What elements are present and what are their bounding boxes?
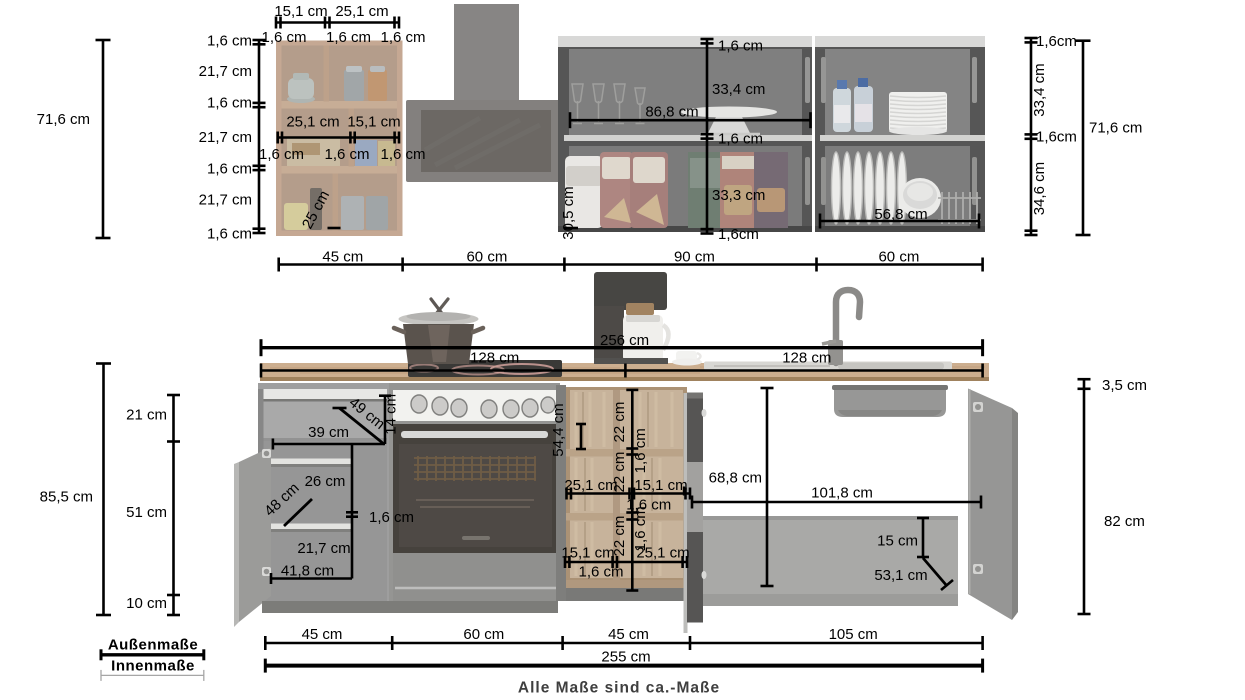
svg-text:45 cm: 45 cm (608, 626, 649, 643)
svg-text:54,4 cm: 54,4 cm (550, 403, 567, 456)
svg-text:128 cm: 128 cm (470, 349, 519, 366)
svg-text:1,6cm: 1,6cm (718, 226, 759, 243)
svg-text:1,6 cm: 1,6 cm (626, 496, 671, 513)
svg-text:51 cm: 51 cm (126, 504, 167, 521)
svg-text:82 cm: 82 cm (1104, 513, 1145, 530)
svg-text:1,6 cm: 1,6 cm (369, 509, 414, 526)
svg-text:10 cm: 10 cm (126, 595, 167, 612)
svg-text:25,1 cm: 25,1 cm (564, 477, 617, 494)
svg-text:1,6 cm: 1,6 cm (207, 32, 252, 49)
svg-text:41,8 cm: 41,8 cm (281, 562, 334, 579)
svg-text:Innenmaße: Innenmaße (111, 658, 195, 675)
svg-text:45 cm: 45 cm (302, 626, 343, 643)
svg-text:1,6 cm: 1,6 cm (207, 226, 252, 243)
svg-text:128 cm: 128 cm (782, 349, 831, 366)
svg-text:1,6 cm: 1,6 cm (718, 37, 763, 54)
svg-text:33,3 cm: 33,3 cm (712, 187, 765, 204)
svg-text:25,1 cm: 25,1 cm (286, 114, 339, 131)
svg-text:105 cm: 105 cm (829, 626, 878, 643)
svg-text:33,4 cm: 33,4 cm (712, 81, 765, 98)
svg-text:45 cm: 45 cm (322, 248, 363, 265)
svg-text:68,8 cm: 68,8 cm (709, 469, 762, 486)
svg-text:33,4 cm: 33,4 cm (1031, 63, 1048, 116)
svg-text:1,6 cm: 1,6 cm (578, 564, 623, 581)
svg-text:15,1 cm: 15,1 cm (274, 3, 327, 20)
svg-text:26 cm: 26 cm (305, 473, 346, 490)
svg-text:1,6 cm: 1,6 cm (207, 160, 252, 177)
svg-text:3,5 cm: 3,5 cm (1102, 377, 1147, 394)
svg-text:21,7 cm: 21,7 cm (199, 191, 252, 208)
svg-text:1,6 cm: 1,6 cm (632, 428, 649, 473)
svg-text:1,6 cm: 1,6 cm (380, 29, 425, 46)
svg-text:60 cm: 60 cm (466, 248, 507, 265)
svg-text:1,6cm: 1,6cm (1036, 33, 1077, 50)
svg-text:255 cm: 255 cm (601, 649, 650, 666)
svg-text:60 cm: 60 cm (878, 249, 919, 266)
svg-text:60 cm: 60 cm (463, 626, 504, 643)
svg-text:21,7 cm: 21,7 cm (199, 129, 252, 146)
svg-text:1,6 cm: 1,6 cm (718, 130, 763, 147)
svg-text:86,8 cm: 86,8 cm (645, 103, 698, 120)
svg-text:14 cm: 14 cm (383, 394, 400, 435)
svg-text:1,6 cm: 1,6 cm (261, 29, 306, 46)
svg-text:1,6 cm: 1,6 cm (207, 95, 252, 112)
svg-text:34,6 cm: 34,6 cm (1031, 162, 1048, 215)
svg-text:15 cm: 15 cm (877, 532, 918, 549)
svg-text:30,5 cm: 30,5 cm (560, 186, 577, 239)
svg-text:Alle Maße sind ca.-Maße: Alle Maße sind ca.-Maße (518, 680, 720, 697)
svg-text:25,1 cm: 25,1 cm (335, 3, 388, 20)
svg-text:1,6 cm: 1,6 cm (324, 146, 369, 163)
svg-text:101,8 cm: 101,8 cm (811, 484, 873, 501)
svg-text:1,6 cm: 1,6 cm (326, 29, 371, 46)
svg-text:39 cm: 39 cm (308, 424, 349, 441)
svg-text:21,7 cm: 21,7 cm (297, 540, 350, 557)
svg-text:21 cm: 21 cm (126, 406, 167, 423)
svg-text:53,1 cm: 53,1 cm (874, 567, 927, 584)
svg-text:Außenmaße: Außenmaße (108, 637, 198, 654)
svg-text:22 cm: 22 cm (611, 402, 628, 443)
svg-text:71,6 cm: 71,6 cm (37, 111, 90, 128)
svg-text:85,5 cm: 85,5 cm (40, 488, 93, 505)
svg-text:71,6 cm: 71,6 cm (1089, 119, 1142, 136)
svg-text:90 cm: 90 cm (674, 249, 715, 266)
svg-text:1,6cm: 1,6cm (1036, 129, 1077, 146)
svg-text:15,1 cm: 15,1 cm (347, 114, 400, 131)
svg-text:21,7 cm: 21,7 cm (199, 63, 252, 80)
svg-text:15,1 cm: 15,1 cm (634, 477, 687, 494)
svg-text:1,6 cm: 1,6 cm (259, 146, 304, 163)
svg-text:1,6 cm: 1,6 cm (380, 146, 425, 163)
